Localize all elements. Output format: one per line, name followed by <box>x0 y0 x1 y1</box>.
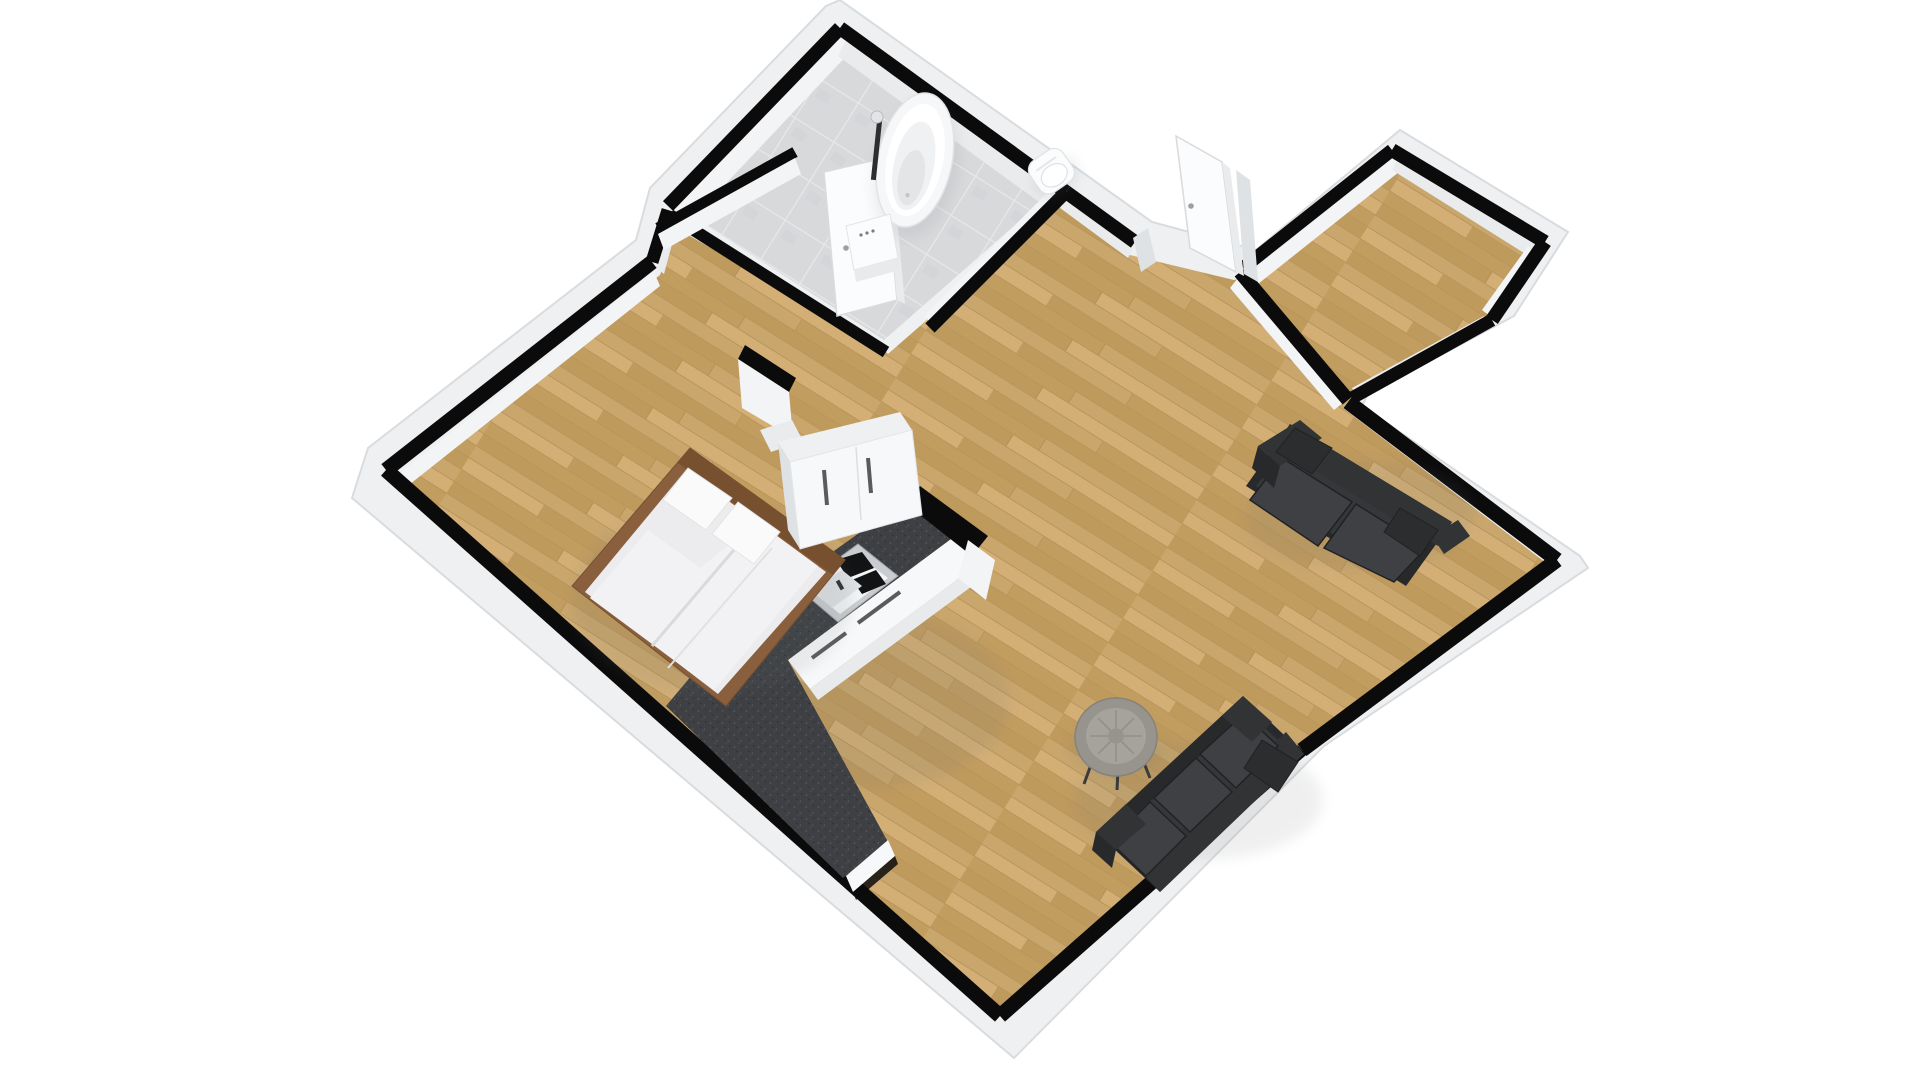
floor-plan-canvas <box>0 0 1920 1080</box>
floor-plan-svg <box>0 0 1920 1080</box>
door-handle <box>843 245 849 251</box>
door-handle <box>1188 203 1194 209</box>
